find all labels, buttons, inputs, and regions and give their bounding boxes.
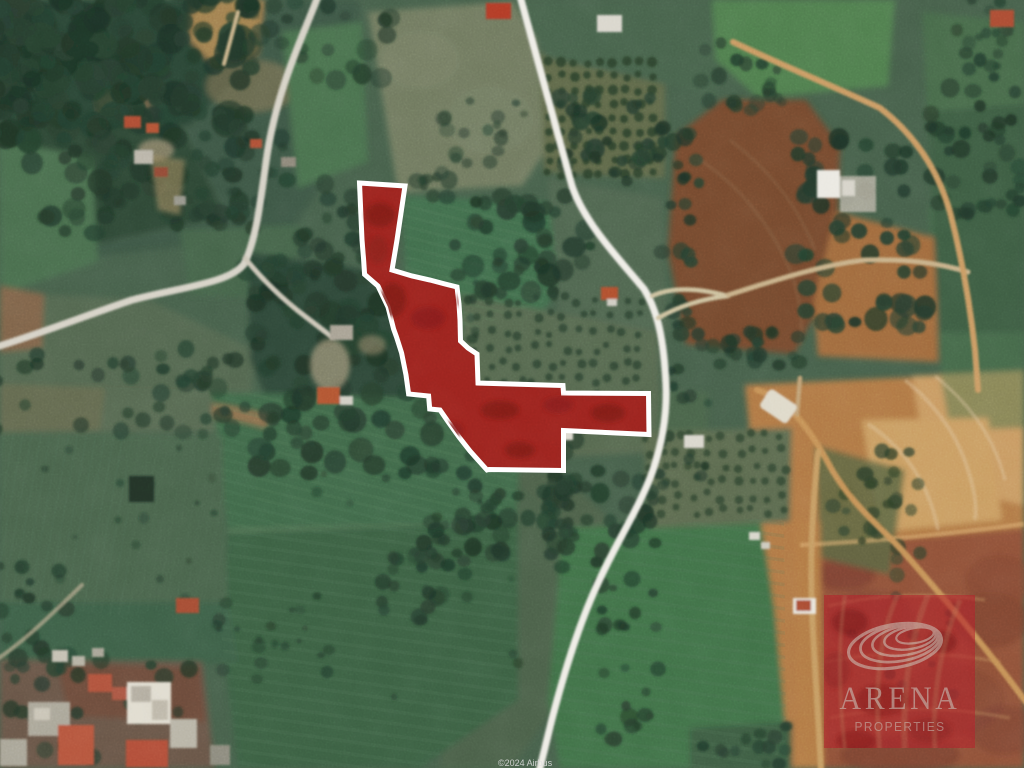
svg-text:©2024 Airbus: ©2024 Airbus — [498, 758, 553, 768]
